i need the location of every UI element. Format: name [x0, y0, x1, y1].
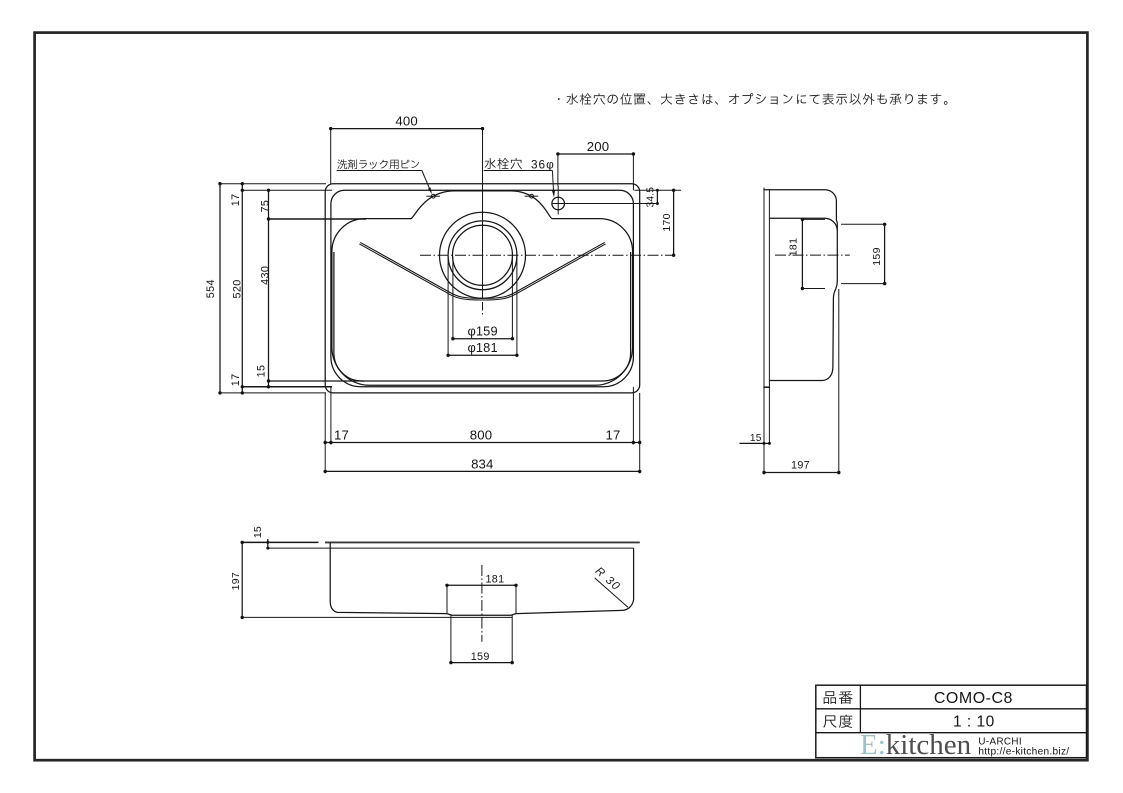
svg-text:34.5: 34.5 [645, 187, 656, 208]
svg-text:181: 181 [486, 573, 505, 585]
svg-text:http://e-kitchen.biz/: http://e-kitchen.biz/ [978, 746, 1069, 757]
svg-text:17: 17 [606, 428, 621, 443]
svg-text:75: 75 [260, 200, 272, 213]
svg-text:COMO-C8: COMO-C8 [934, 690, 1013, 707]
svg-text:181: 181 [787, 238, 799, 256]
svg-text:197: 197 [230, 572, 242, 590]
svg-text:17: 17 [334, 428, 349, 443]
svg-text:554: 554 [205, 279, 217, 298]
svg-text:36φ: 36φ [531, 158, 555, 172]
svg-text:800: 800 [470, 428, 492, 443]
svg-text:17: 17 [230, 193, 242, 206]
svg-text:17: 17 [230, 373, 242, 386]
svg-text:170: 170 [661, 213, 673, 231]
svg-text:15: 15 [252, 526, 264, 538]
svg-text:1 : 10: 1 : 10 [953, 713, 995, 730]
svg-text:159: 159 [871, 247, 883, 265]
svg-text:200: 200 [587, 139, 609, 154]
svg-text:15: 15 [256, 365, 268, 378]
svg-text:430: 430 [260, 266, 272, 285]
svg-text:520: 520 [232, 279, 244, 298]
svg-text:15: 15 [750, 433, 762, 444]
svg-text:400: 400 [395, 113, 417, 128]
svg-text:φ159: φ159 [467, 324, 497, 339]
svg-text:E:kitchen: E:kitchen [860, 729, 972, 761]
svg-text:159: 159 [471, 651, 490, 663]
svg-text:834: 834 [471, 456, 493, 471]
svg-text:197: 197 [791, 460, 810, 472]
svg-text:φ181: φ181 [467, 340, 497, 355]
